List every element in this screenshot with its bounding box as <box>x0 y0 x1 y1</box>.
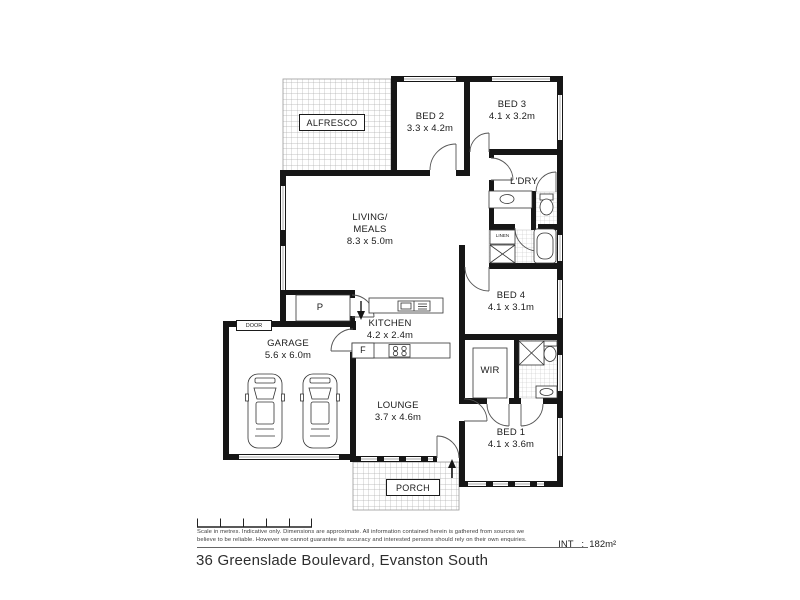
cooktop-icon <box>389 345 410 358</box>
label-garage-door: DOOR <box>236 320 272 331</box>
room-label-linen: LINEN <box>489 233 516 239</box>
bathtub-icon <box>534 229 556 263</box>
floor-plan-page: ALFRESCO BED 2 3.3 x 4.2m BED 3 4.1 x 3.… <box>0 0 800 600</box>
kitchen-island <box>369 298 443 313</box>
laundry-sink-icon <box>500 195 514 204</box>
room-label-bed4: BED 4 4.1 x 3.1m <box>464 290 558 314</box>
room-label-garage: GARAGE 5.6 x 6.0m <box>236 338 340 362</box>
room-label-laundry: L'DRY <box>491 176 557 188</box>
room-label-bed3: BED 3 4.1 x 3.2m <box>466 99 558 123</box>
disclaimer-line-1: Scale in metres. Indicative only. Dimens… <box>197 529 524 535</box>
ensuite-toilet-icon <box>544 341 557 362</box>
room-label-living: LIVING/ MEALS 8.3 x 5.0m <box>318 212 422 248</box>
ensuite-shower-icon <box>519 341 544 365</box>
car-icon <box>246 374 285 448</box>
room-label-porch: PORCH <box>386 479 440 496</box>
car-icon <box>301 374 340 448</box>
disclaimer-line-2: believe to be reliable. However we canno… <box>197 537 527 543</box>
room-label-lounge: LOUNGE 3.7 x 4.6m <box>346 400 450 424</box>
ensuite-basin-icon <box>536 386 557 398</box>
laundry-bench <box>489 191 532 208</box>
room-label-alfresco: ALFRESCO <box>299 114 365 131</box>
shower-icon <box>490 245 515 263</box>
room-label-pantry: P <box>310 302 330 314</box>
floor-plan-drawing <box>0 0 800 600</box>
scale-bar <box>197 519 312 528</box>
internal-area-value: INT : 182m² <box>553 528 616 550</box>
room-label-kitchen: KITCHEN 4.2 x 2.4m <box>338 318 442 342</box>
label-fridge: F <box>352 345 374 356</box>
room-label-bed2: BED 2 3.3 x 4.2m <box>392 111 468 135</box>
property-address: 36 Greenslade Boulevard, Evanston South <box>196 552 488 569</box>
toilet-icon <box>540 194 553 215</box>
room-label-bed1: BED 1 4.1 x 3.6m <box>464 427 558 451</box>
room-label-wir: WIR <box>472 365 508 377</box>
